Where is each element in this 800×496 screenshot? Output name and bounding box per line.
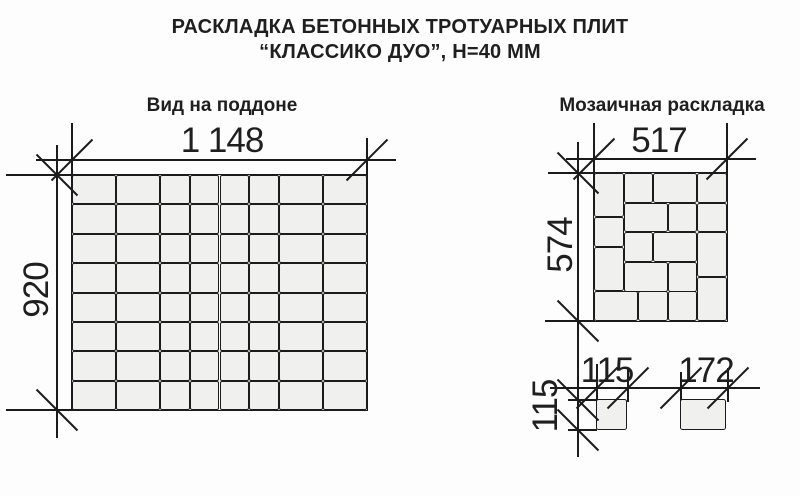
pallet-tile (323, 322, 367, 351)
dimension-label-square-width: 115 (557, 352, 657, 388)
mosaic-tile (624, 232, 654, 262)
mosaic-tile (697, 173, 727, 203)
mosaic-tile (594, 247, 624, 291)
dimension-label-pallet-height: 920 (18, 238, 54, 342)
mosaic-tile (638, 291, 668, 321)
pallet-tile (116, 322, 160, 351)
dimension-line-mosaic-height (577, 142, 579, 457)
pallet-tile (190, 351, 220, 380)
dimension-label-square-height: 115 (527, 354, 563, 458)
dimension-label-rect-width: 172 (656, 352, 756, 388)
pallet-tile (190, 263, 220, 292)
mosaic-tile (594, 173, 624, 217)
pallet-tile (279, 234, 323, 263)
pallet-tile (249, 381, 279, 410)
pallet-tile (220, 381, 250, 410)
mosaic-tile (668, 262, 698, 292)
pallet-tile (160, 263, 190, 292)
mosaic-tile (653, 173, 697, 203)
pallet-tile (116, 204, 160, 233)
pallet-tile (279, 204, 323, 233)
pallet-tile (116, 175, 160, 204)
pallet-tile (116, 381, 160, 410)
mosaic-tile (697, 232, 727, 276)
pallet-tile (72, 204, 116, 233)
pallet-tile (116, 234, 160, 263)
pallet-tile (279, 381, 323, 410)
pallet-tile (323, 293, 367, 322)
dimension-label-pallet-width: 1 148 (142, 122, 302, 158)
mosaic-tile (624, 262, 668, 292)
mosaic-tile (624, 173, 654, 203)
mosaic-tile (624, 203, 668, 233)
pallet-tile (249, 263, 279, 292)
title-line-2: “КЛАССИКО ДУО”, Н=40 ММ (0, 40, 800, 65)
drawing-title: РАСКЛАДКА БЕТОННЫХ ТРОТУАРНЫХ ПЛИТ “КЛАС… (0, 15, 800, 65)
pallet-tile (323, 351, 367, 380)
pallet-tile (160, 293, 190, 322)
pallet-tile (72, 263, 116, 292)
pallet-tile (323, 263, 367, 292)
extension-line (548, 172, 595, 174)
pallet-tile (190, 381, 220, 410)
pallet-tile (116, 351, 160, 380)
extension-line (545, 320, 595, 322)
mosaic-view-heading: Мозаичная раскладка (512, 95, 800, 117)
drawing-canvas: РАСКЛАДКА БЕТОННЫХ ТРОТУАРНЫХ ПЛИТ “КЛАС… (0, 0, 800, 496)
pallet-tile (190, 234, 220, 263)
pallet-tile (279, 175, 323, 204)
pallet-tile (190, 175, 220, 204)
single-tile-rect (680, 399, 726, 430)
pallet-tile (279, 351, 323, 380)
pallet-grid (72, 175, 367, 410)
pallet-tile (279, 263, 323, 292)
pallet-tile (220, 175, 250, 204)
pallet-tile (249, 234, 279, 263)
pallet-tile (220, 351, 250, 380)
extension-line (568, 429, 597, 431)
pallet-tile (249, 204, 279, 233)
pallet-tile (190, 293, 220, 322)
pallet-tile (160, 175, 190, 204)
pallet-tile (220, 322, 250, 351)
pallet-tile (249, 175, 279, 204)
pallet-tile (190, 322, 220, 351)
dimension-label-mosaic-width: 517 (599, 122, 719, 158)
mosaic-tile (594, 291, 638, 321)
dimension-label-mosaic-height: 574 (542, 193, 578, 297)
mosaic-tile (668, 203, 698, 233)
pallet-tile (323, 204, 367, 233)
dimension-line-pallet-height (56, 145, 58, 438)
pallet-tile (279, 293, 323, 322)
extension-line (6, 174, 73, 176)
pallet-tile (72, 293, 116, 322)
pallet-tile (72, 234, 116, 263)
pallet-tile (323, 234, 367, 263)
pallet-tile (72, 322, 116, 351)
pallet-tile (249, 351, 279, 380)
pallet-tile (72, 351, 116, 380)
pallet-tile (190, 204, 220, 233)
pallet-tile (116, 293, 160, 322)
pallet-tile (323, 381, 367, 410)
pallet-tile (249, 322, 279, 351)
extension-line (6, 409, 73, 411)
pallet-tile (160, 381, 190, 410)
pallet-tile (72, 175, 116, 204)
mosaic-tile (697, 203, 727, 233)
title-line-1: РАСКЛАДКА БЕТОННЫХ ТРОТУАРНЫХ ПЛИТ (0, 15, 800, 40)
pallet-tile (249, 293, 279, 322)
pallet-tile (116, 263, 160, 292)
pallet-view-heading: Вид на поддоне (72, 95, 372, 117)
pallet-tile (72, 381, 116, 410)
mosaic-tile (653, 232, 697, 262)
pallet-tile (160, 234, 190, 263)
pallet-tile (220, 293, 250, 322)
pallet-tile (160, 351, 190, 380)
mosaic-grid (594, 173, 727, 321)
pallet-tile (160, 204, 190, 233)
pallet-tile (220, 263, 250, 292)
pallet-tile (220, 204, 250, 233)
pallet-tile (220, 234, 250, 263)
mosaic-tile (594, 217, 624, 247)
mosaic-tile (668, 291, 698, 321)
pallet-tile (279, 322, 323, 351)
mosaic-tile (697, 277, 727, 321)
pallet-tile (160, 322, 190, 351)
